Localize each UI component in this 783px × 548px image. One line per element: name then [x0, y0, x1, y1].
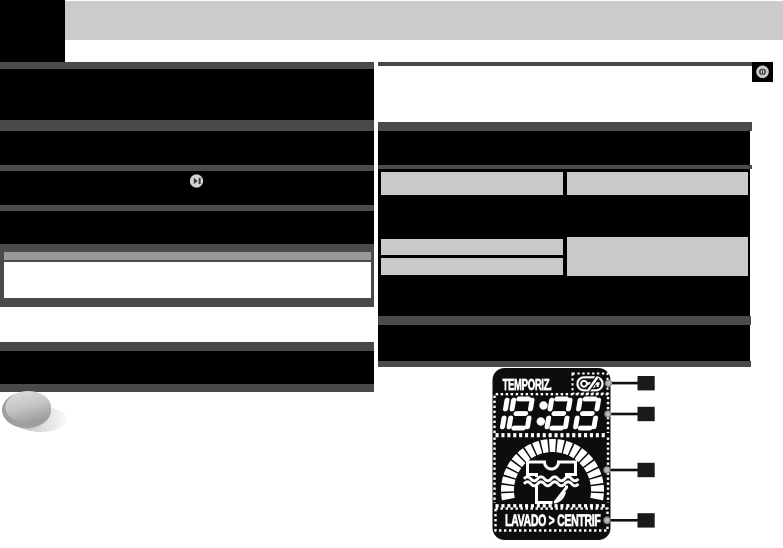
svg-text:LAVADO > CENTRIF: LAVADO > CENTRIF — [505, 510, 601, 529]
svg-text:TEMPORIZ.: TEMPORIZ. — [503, 376, 552, 394]
